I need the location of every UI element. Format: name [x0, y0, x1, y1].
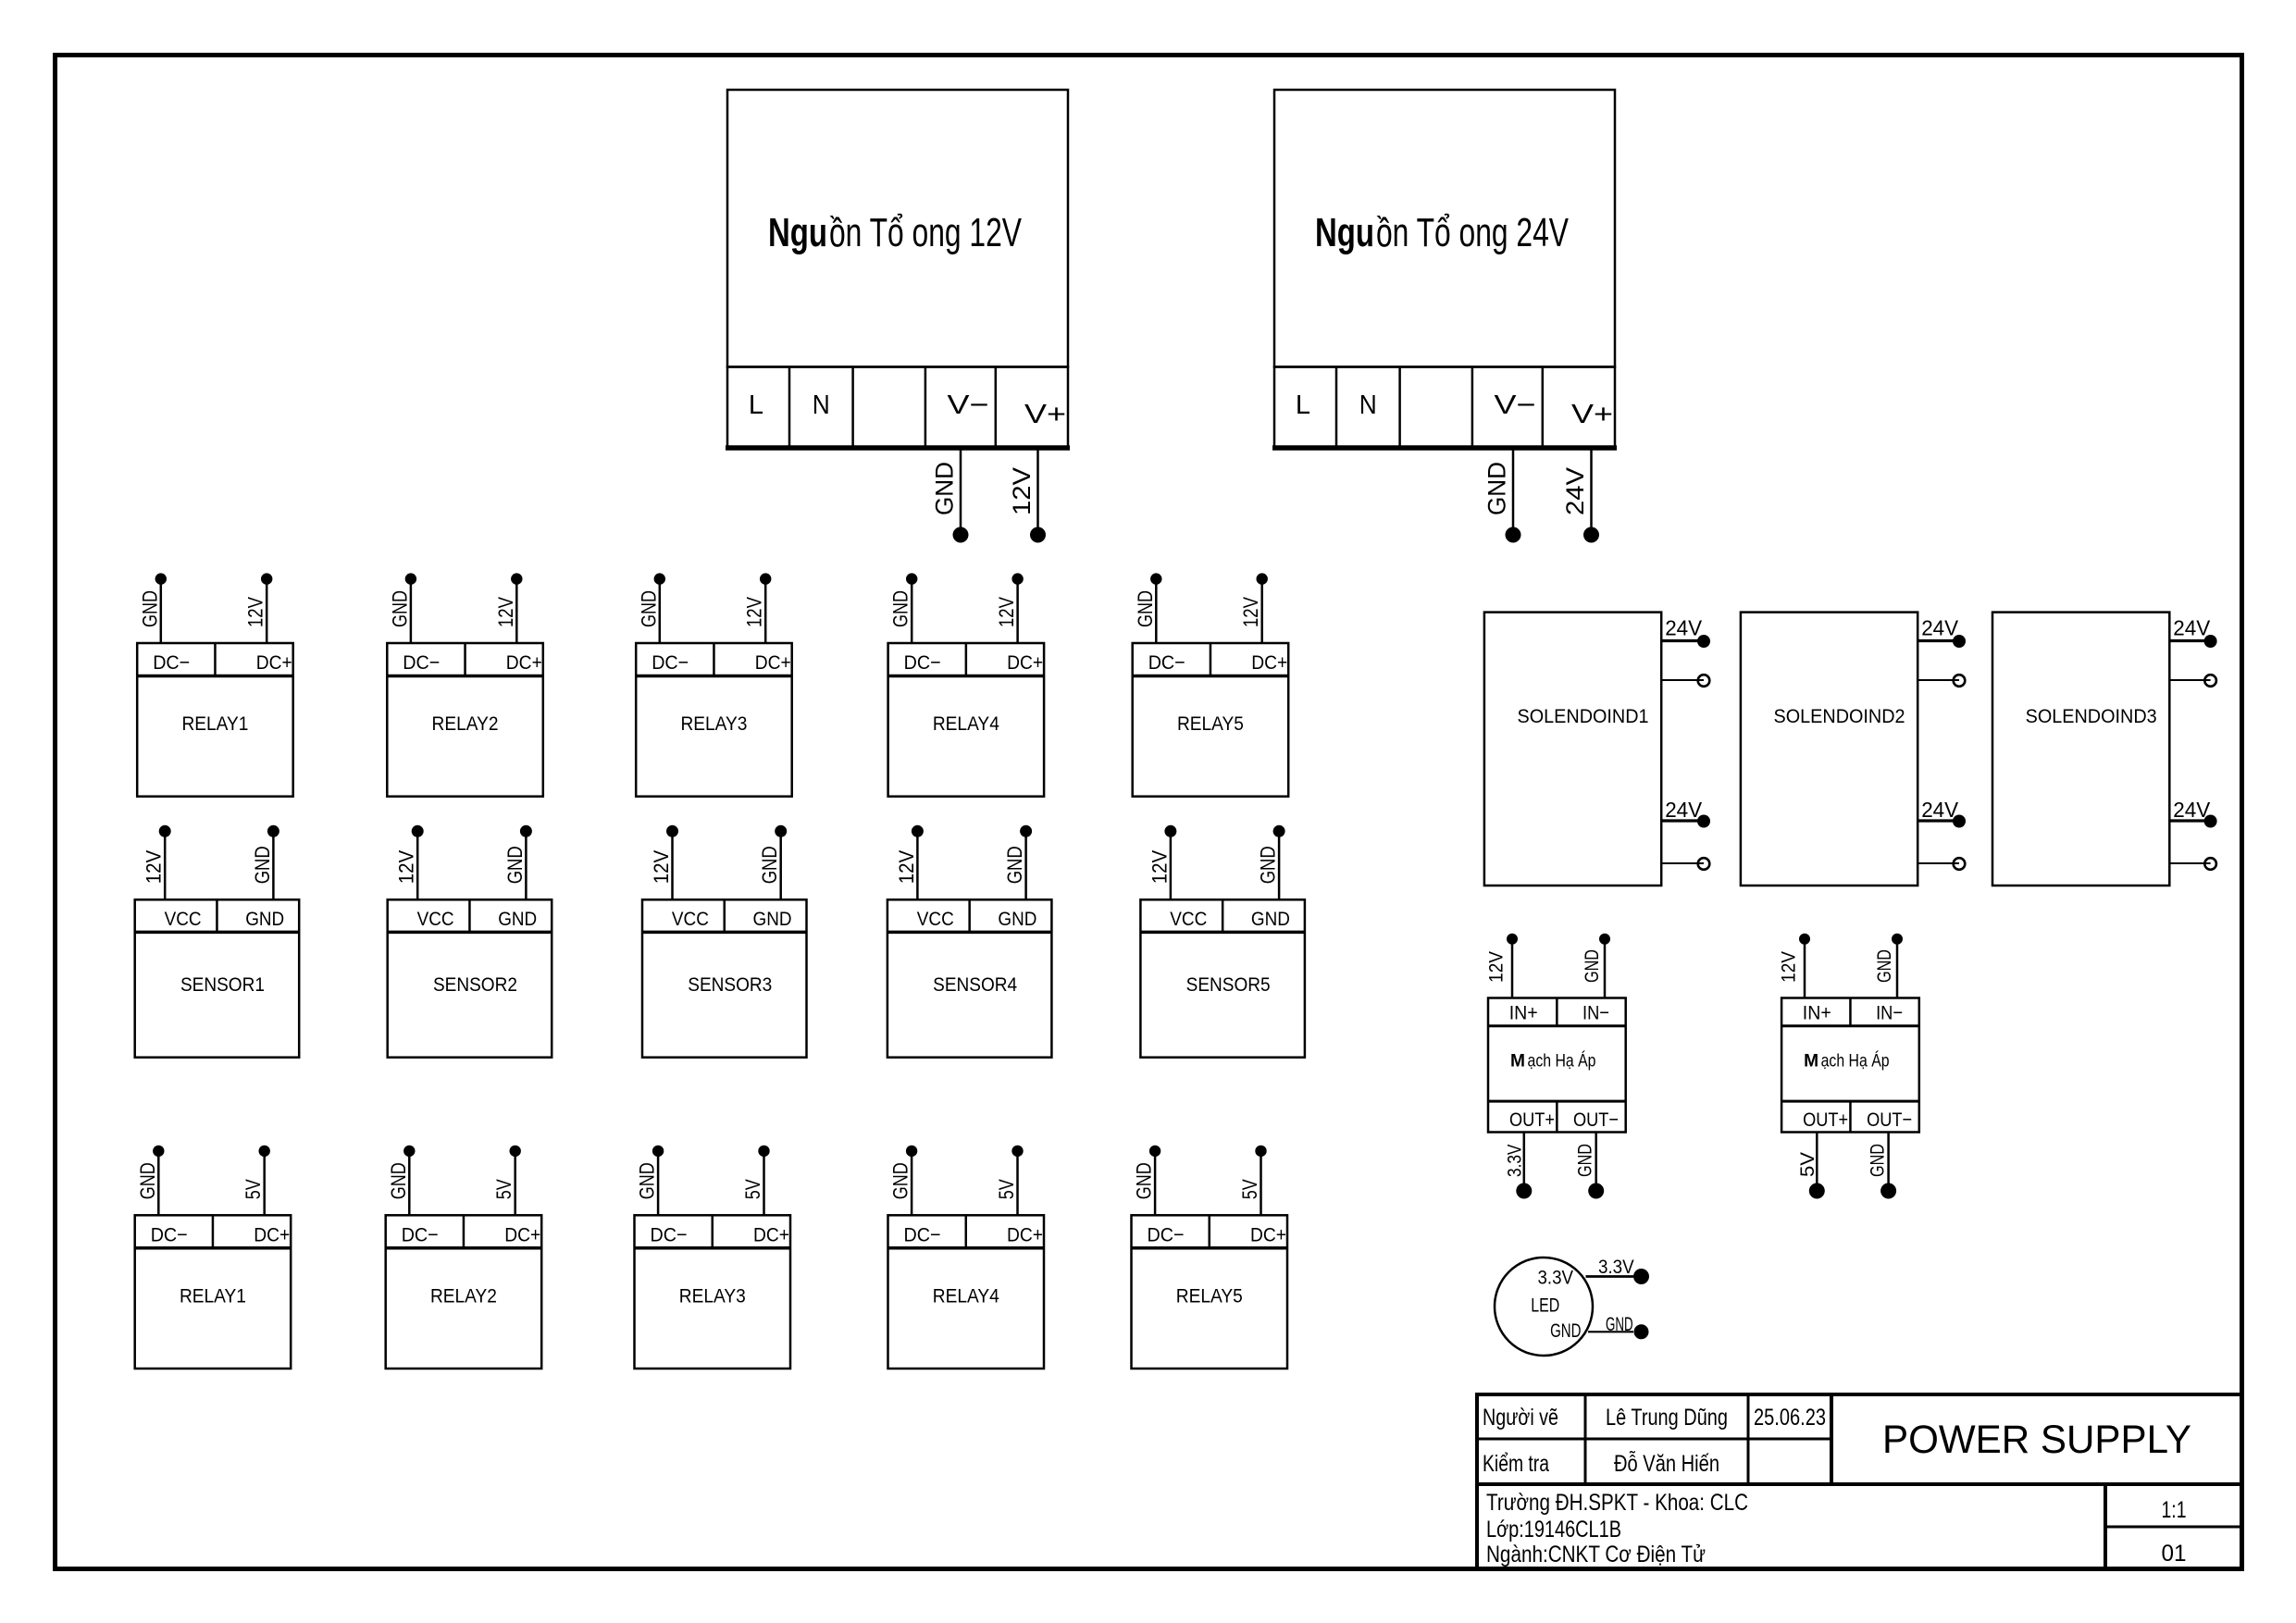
svg-text:N: N — [1359, 390, 1377, 420]
svg-text:Ngu: Ngu — [768, 210, 827, 255]
svg-text:RELAY1: RELAY1 — [181, 712, 248, 735]
svg-text:24V: 24V — [1921, 616, 1959, 640]
svg-text:M: M — [1510, 1051, 1525, 1072]
svg-text:GND: GND — [387, 1162, 410, 1199]
svg-text:Ngành:CNKT Cơ Điện Tử: Ngành:CNKT Cơ Điện Tử — [1486, 1542, 1706, 1567]
svg-text:SENSOR4: SENSOR4 — [933, 973, 1017, 996]
svg-text:GND: GND — [1606, 1313, 1633, 1335]
svg-text:SOLENDOIND3: SOLENDOIND3 — [2026, 705, 2157, 727]
svg-text:V+: V+ — [1571, 400, 1613, 429]
svg-text:DC+: DC+ — [753, 1223, 789, 1245]
svg-text:GND: GND — [138, 590, 161, 627]
svg-text:24V: 24V — [1921, 798, 1959, 822]
svg-text:GND: GND — [1251, 908, 1290, 930]
svg-text:GND: GND — [758, 846, 781, 884]
svg-text:SENSOR5: SENSOR5 — [1186, 973, 1271, 996]
svg-text:ồn Tổ ong 12V: ồn Tổ ong 12V — [829, 210, 1022, 255]
svg-text:12V: 12V — [895, 850, 918, 885]
svg-text:RELAY1: RELAY1 — [180, 1284, 246, 1307]
svg-text:GND: GND — [889, 590, 912, 627]
svg-text:DC−: DC− — [403, 651, 440, 674]
svg-text:Đỗ Văn Hiến: Đỗ Văn Hiến — [1614, 1450, 1719, 1477]
svg-text:GND: GND — [637, 590, 660, 627]
svg-text:GND: GND — [388, 590, 411, 627]
svg-text:POWER SUPPLY: POWER SUPPLY — [1882, 1418, 2191, 1462]
svg-text:VCC: VCC — [165, 908, 202, 930]
svg-text:V−: V− — [948, 390, 989, 420]
svg-text:GND: GND — [998, 908, 1036, 930]
svg-text:IN−: IN− — [1582, 1002, 1609, 1024]
svg-text:5V: 5V — [1238, 1179, 1261, 1199]
svg-text:DC+: DC+ — [755, 651, 791, 674]
svg-text:12V: 12V — [494, 597, 517, 627]
svg-text:24V: 24V — [1561, 467, 1589, 515]
svg-text:GND: GND — [1575, 1144, 1596, 1177]
svg-text:OUT−: OUT− — [1573, 1109, 1619, 1131]
svg-text:SOLENDOIND2: SOLENDOIND2 — [1774, 705, 1905, 727]
svg-text:Lê Trung Dũng: Lê Trung Dũng — [1606, 1405, 1728, 1431]
svg-text:SENSOR1: SENSOR1 — [180, 973, 265, 996]
svg-text:OUT−: OUT− — [1867, 1109, 1912, 1131]
svg-text:Người vẽ: Người vẽ — [1483, 1405, 1558, 1431]
svg-text:DC−: DC− — [651, 1223, 688, 1245]
svg-text:DC+: DC+ — [1007, 651, 1043, 674]
svg-text:VCC: VCC — [417, 908, 454, 930]
svg-text:L: L — [749, 390, 763, 420]
svg-text:RELAY4: RELAY4 — [933, 1284, 999, 1307]
svg-text:GND: GND — [245, 908, 284, 930]
svg-text:RELAY2: RELAY2 — [430, 1284, 497, 1307]
svg-text:SENSOR2: SENSOR2 — [433, 973, 517, 996]
svg-text:Lớp:19146CL1B: Lớp:19146CL1B — [1486, 1517, 1621, 1542]
svg-text:GND: GND — [1133, 1162, 1156, 1199]
svg-text:RELAY3: RELAY3 — [679, 1284, 746, 1307]
svg-text:12V: 12V — [995, 597, 1018, 627]
svg-text:Trường ĐH.SPKT - Khoa: CLC: Trường ĐH.SPKT - Khoa: CLC — [1486, 1490, 1748, 1516]
svg-text:GND: GND — [1257, 846, 1280, 884]
svg-text:DC−: DC− — [1148, 651, 1185, 674]
svg-text:IN+: IN+ — [1509, 1002, 1538, 1024]
svg-text:DC+: DC+ — [1250, 1223, 1286, 1245]
svg-text:12V: 12V — [650, 850, 673, 885]
svg-text:GND: GND — [931, 462, 959, 515]
svg-text:ạch Hạ Áp: ạch Hạ Áp — [1528, 1050, 1596, 1072]
svg-text:N: N — [813, 390, 830, 420]
svg-text:RELAY3: RELAY3 — [680, 712, 747, 735]
svg-text:GND: GND — [1582, 949, 1603, 983]
svg-text:3.3V: 3.3V — [1538, 1267, 1574, 1289]
svg-text:12V: 12V — [1148, 850, 1171, 885]
svg-text:5V: 5V — [242, 1179, 265, 1199]
svg-text:RELAY5: RELAY5 — [1177, 712, 1244, 735]
svg-text:ồn Tổ ong 24V: ồn Tổ ong 24V — [1376, 210, 1569, 255]
svg-text:12V: 12V — [244, 597, 267, 627]
svg-text:01: 01 — [2162, 1541, 2187, 1567]
svg-text:DC−: DC− — [153, 651, 190, 674]
svg-text:3.3V: 3.3V — [1598, 1256, 1634, 1278]
svg-text:DC+: DC+ — [504, 1223, 540, 1245]
svg-text:VCC: VCC — [672, 908, 709, 930]
svg-text:V+: V+ — [1024, 400, 1066, 429]
svg-text:SENSOR3: SENSOR3 — [688, 973, 772, 996]
svg-text:5V: 5V — [995, 1179, 1018, 1199]
svg-text:Kiểm tra: Kiểm tra — [1483, 1451, 1549, 1477]
svg-text:5V: 5V — [741, 1179, 764, 1199]
svg-text:DC−: DC− — [652, 651, 689, 674]
svg-text:DC+: DC+ — [254, 1223, 290, 1245]
svg-text:3.3V: 3.3V — [1504, 1145, 1525, 1177]
svg-text:DC+: DC+ — [1007, 1223, 1043, 1245]
svg-text:L: L — [1296, 390, 1310, 420]
svg-text:DC+: DC+ — [256, 651, 292, 674]
svg-text:VCC: VCC — [1170, 908, 1207, 930]
svg-text:RELAY4: RELAY4 — [933, 712, 999, 735]
svg-text:GND: GND — [1550, 1319, 1581, 1342]
svg-text:GND: GND — [251, 846, 274, 884]
svg-text:GND: GND — [1868, 1144, 1889, 1177]
svg-text:DC−: DC− — [904, 651, 941, 674]
svg-text:OUT+: OUT+ — [1509, 1109, 1555, 1131]
svg-text:24V: 24V — [1665, 798, 1703, 822]
svg-text:DC−: DC− — [904, 1223, 941, 1245]
svg-text:DC−: DC− — [151, 1223, 188, 1245]
svg-text:25.06.23: 25.06.23 — [1754, 1405, 1826, 1431]
svg-text:GND: GND — [753, 908, 792, 930]
svg-text:DC−: DC− — [402, 1223, 439, 1245]
svg-text:GND: GND — [1003, 846, 1026, 884]
svg-text:GND: GND — [1134, 590, 1157, 627]
svg-text:12V: 12V — [395, 850, 418, 885]
svg-text:SOLENDOIND1: SOLENDOIND1 — [1518, 705, 1649, 727]
svg-text:12V: 12V — [143, 850, 166, 885]
svg-text:GND: GND — [136, 1162, 159, 1199]
svg-text:24V: 24V — [1665, 616, 1703, 640]
svg-text:12V: 12V — [743, 597, 766, 627]
svg-text:24V: 24V — [2173, 616, 2211, 640]
svg-text:V−: V− — [1495, 390, 1536, 420]
svg-text:12V: 12V — [1239, 597, 1262, 627]
svg-text:OUT+: OUT+ — [1803, 1109, 1848, 1131]
svg-text:M: M — [1804, 1051, 1818, 1072]
svg-text:ạch Hạ Áp: ạch Hạ Áp — [1821, 1050, 1890, 1072]
svg-text:RELAY2: RELAY2 — [432, 712, 499, 735]
svg-text:24V: 24V — [2173, 798, 2211, 822]
svg-text:RELAY5: RELAY5 — [1176, 1284, 1243, 1307]
svg-text:DC+: DC+ — [506, 651, 542, 674]
svg-text:GND: GND — [498, 908, 537, 930]
svg-text:5V: 5V — [1797, 1152, 1818, 1177]
svg-text:Ngu: Ngu — [1315, 210, 1374, 255]
svg-text:GND: GND — [1874, 949, 1895, 983]
svg-text:GND: GND — [1483, 462, 1511, 515]
svg-text:12V: 12V — [1008, 467, 1036, 515]
svg-text:GND: GND — [889, 1162, 912, 1199]
svg-text:5V: 5V — [492, 1179, 515, 1199]
svg-text:1:1: 1:1 — [2162, 1497, 2187, 1523]
svg-text:IN+: IN+ — [1803, 1002, 1831, 1024]
svg-text:12V: 12V — [1779, 951, 1800, 983]
svg-text:VCC: VCC — [917, 908, 954, 930]
svg-text:DC−: DC− — [1148, 1223, 1185, 1245]
svg-text:GND: GND — [503, 846, 527, 884]
svg-text:LED: LED — [1531, 1295, 1559, 1317]
svg-text:DC+: DC+ — [1251, 651, 1287, 674]
svg-text:IN−: IN− — [1876, 1002, 1903, 1024]
svg-text:GND: GND — [636, 1162, 659, 1199]
svg-text:12V: 12V — [1486, 951, 1508, 983]
